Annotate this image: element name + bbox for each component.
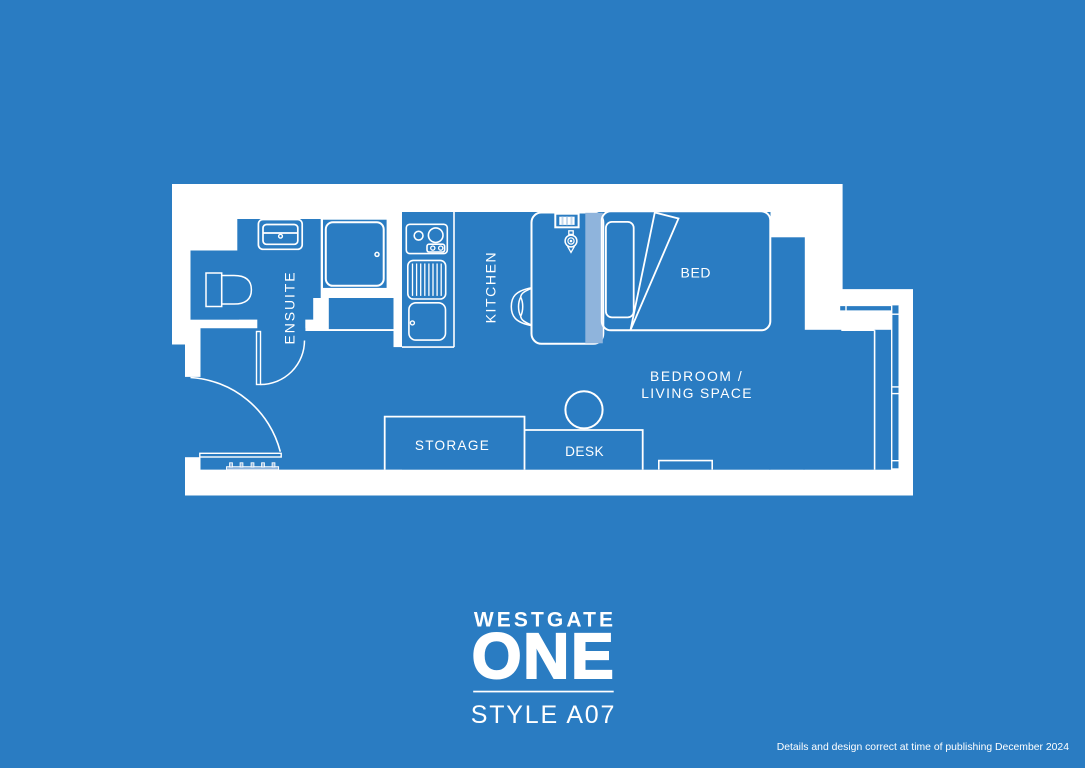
svg-text:ONE: ONE	[472, 620, 616, 692]
svg-text:BED: BED	[681, 265, 712, 281]
svg-text:ENSUITE: ENSUITE	[281, 271, 297, 345]
svg-text:KITCHEN: KITCHEN	[483, 251, 499, 324]
svg-text:STORAGE: STORAGE	[415, 438, 490, 453]
svg-text:DESK: DESK	[565, 444, 604, 459]
svg-text:Details and design correct at: Details and design correct at time of pu…	[777, 742, 1069, 753]
svg-text:LIVING SPACE: LIVING SPACE	[641, 386, 753, 401]
svg-text:STYLE A07: STYLE A07	[471, 701, 616, 729]
svg-text:BEDROOM /: BEDROOM /	[650, 369, 743, 384]
